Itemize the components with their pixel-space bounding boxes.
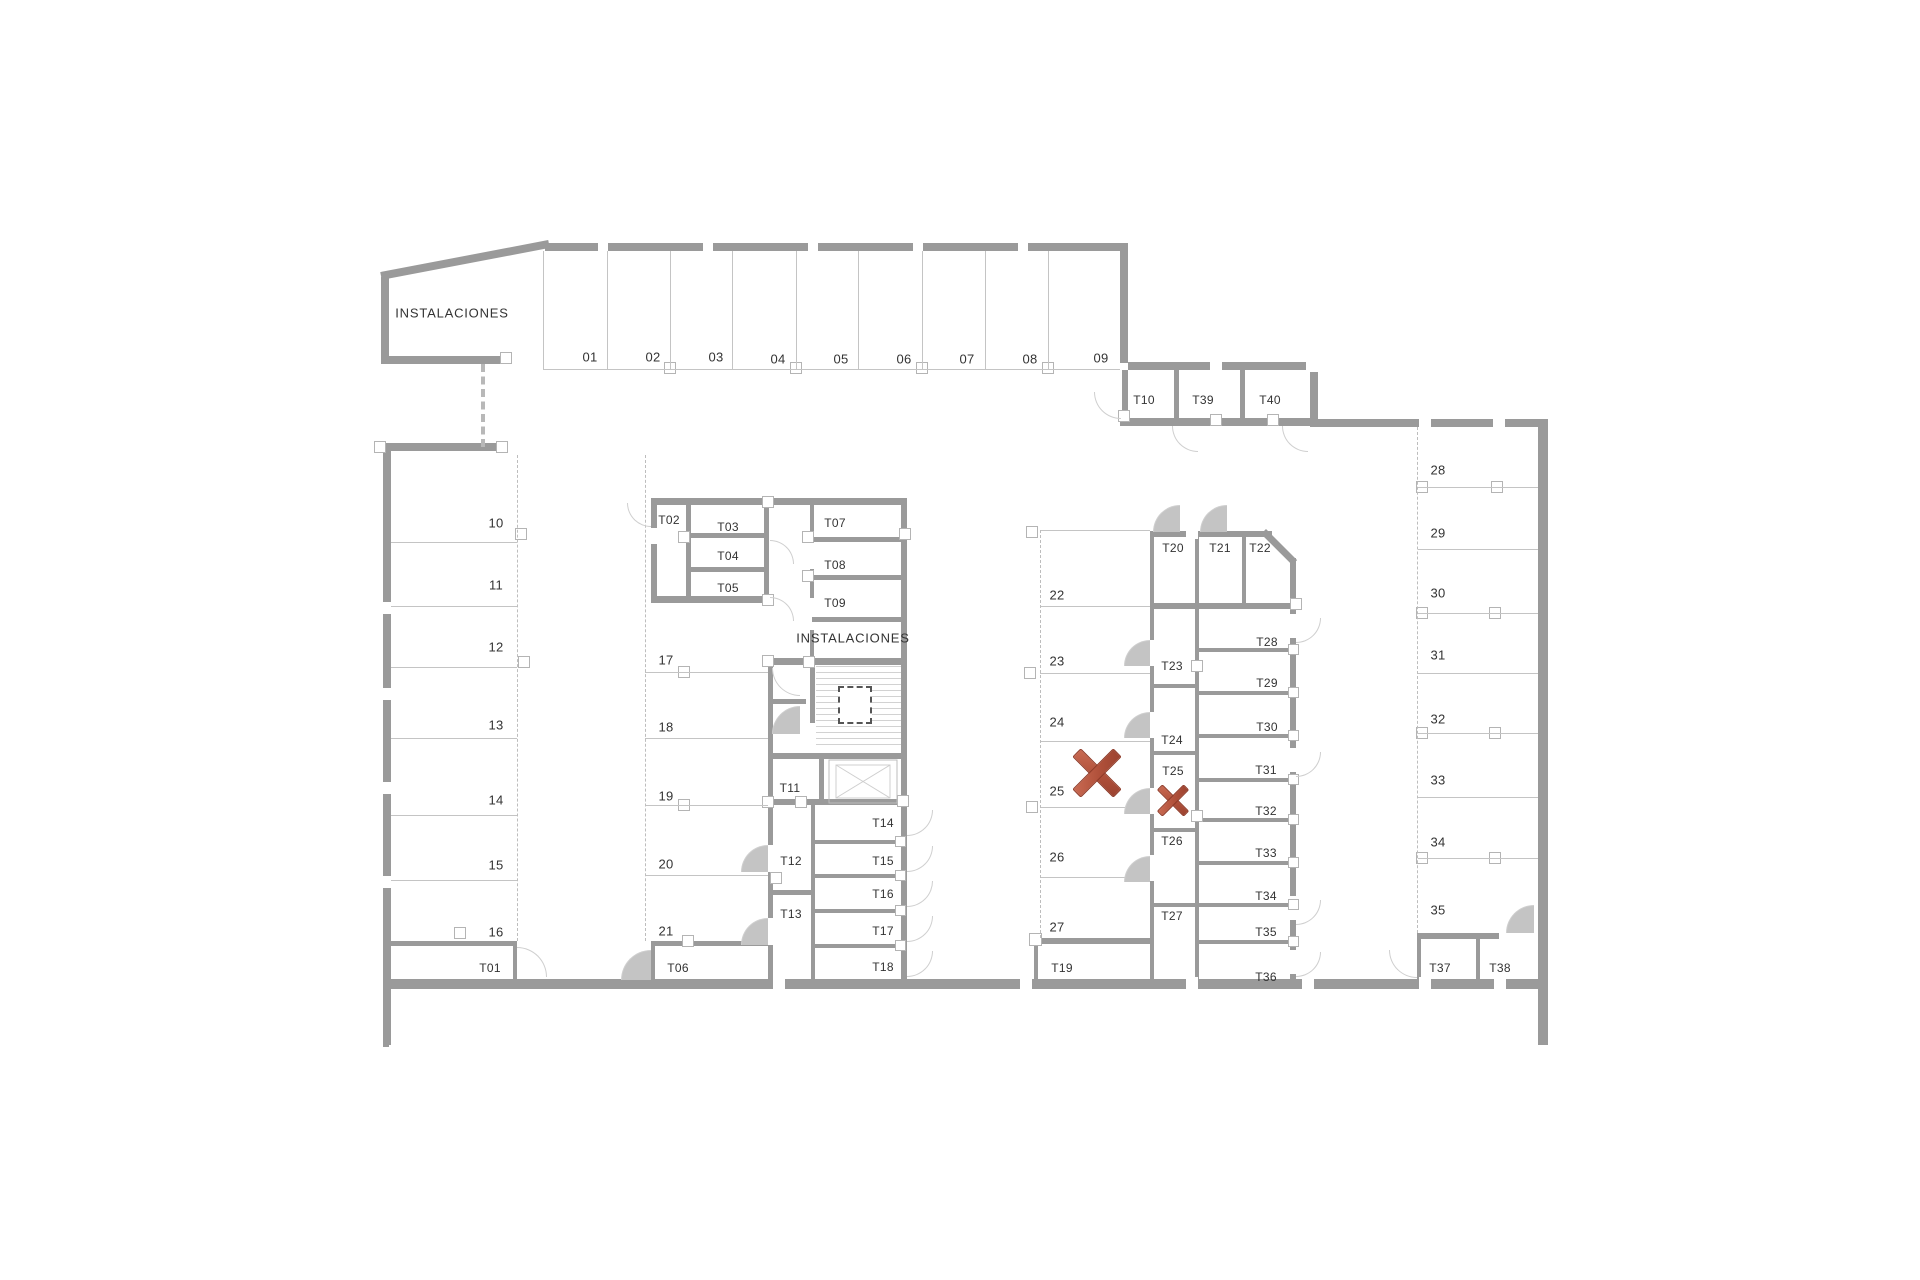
storage-unit-T16: T16 [872,887,894,901]
cross-annotation-1 [1075,754,1119,792]
wall [1199,940,1290,944]
parking-divider [796,251,797,370]
wall [1154,751,1195,755]
door-marker [762,496,774,508]
parking-space-19: 19 [658,789,673,804]
door-marker [802,570,814,582]
door-marker [1267,414,1279,426]
parking-space-12: 12 [488,640,503,655]
wall-opening [381,688,393,700]
wall [768,665,773,755]
door-arc [1124,640,1150,666]
elevator-icon [828,759,898,804]
door-arc [772,706,800,734]
parking-space-16: 16 [488,925,503,940]
wall-opening [808,241,818,253]
door-marker [500,352,512,364]
door-marker [1288,687,1299,698]
door-marker [1288,814,1299,825]
storage-unit-T24: T24 [1161,733,1183,747]
parking-space-28: 28 [1430,463,1445,478]
storage-unit-T27: T27 [1161,909,1183,923]
door-arc [907,916,933,942]
parking-divider [1418,613,1538,614]
wall-opening [381,602,393,614]
wall [768,699,806,704]
door-marker [802,531,814,543]
parking-space-35: 35 [1430,903,1445,918]
door-arc [1282,426,1308,452]
parking-space-04: 04 [770,352,785,367]
storage-unit-T20: T20 [1162,541,1184,555]
door-arc [1124,712,1150,738]
parking-divider [607,251,608,370]
parking-space-27: 27 [1049,920,1064,935]
boundary-dashed [517,455,518,941]
parking-divider [1040,606,1150,607]
parking-divider [645,738,768,739]
parking-divider [1418,797,1538,798]
boundary-dashed [645,455,646,941]
wall [1154,828,1195,832]
storage-unit-T07: T07 [824,516,846,530]
storage-unit-T22: T22 [1249,541,1271,555]
storage-unit-T28: T28 [1256,635,1278,649]
parking-divider [543,369,1120,370]
door-marker [1288,857,1299,868]
wall [1174,370,1179,418]
parking-divider [1418,487,1538,488]
wall [1128,362,1318,370]
door-arc [1296,900,1321,925]
parking-space-21: 21 [658,924,673,939]
wall-opening [1493,417,1505,429]
room-label-label: INSTALACIONES [796,631,909,646]
wall [545,243,1128,251]
parking-space-15: 15 [488,858,503,873]
storage-unit-T12: T12 [780,854,802,868]
storage-unit-T18: T18 [872,960,894,974]
door-arc [1094,392,1121,419]
storage-unit-T01: T01 [479,961,501,975]
door-marker [496,441,508,453]
parking-space-14: 14 [488,793,503,808]
wall [1240,370,1245,418]
parking-divider [670,251,671,370]
storage-unit-T05: T05 [717,581,739,595]
parking-divider [732,251,733,370]
stair-void [838,686,872,724]
boundary-dashed [1040,530,1041,938]
storage-unit-T34: T34 [1255,889,1277,903]
door-arc [1296,618,1321,643]
wall [1538,419,1548,1045]
storage-unit-T30: T30 [1256,720,1278,734]
wall [768,759,773,801]
parking-space-09: 09 [1093,351,1108,366]
parking-divider [645,875,768,876]
wall [1199,903,1290,907]
wall-opening [1419,417,1431,429]
storage-unit-T09: T09 [824,596,846,610]
storage-unit-T29: T29 [1256,676,1278,690]
door-arc [621,950,651,980]
wall [651,505,657,601]
door-marker [899,528,911,540]
door-marker [1210,414,1222,426]
wall [383,979,1548,989]
parking-space-08: 08 [1022,352,1037,367]
door-arc [907,846,933,872]
storage-unit-T23: T23 [1161,659,1183,673]
wall [812,575,904,580]
storage-unit-T25: T25 [1162,764,1184,778]
wall [815,944,902,948]
wall [380,240,549,280]
wall [1034,938,1150,944]
wall [819,759,824,801]
wall [381,277,389,362]
storage-unit-T19: T19 [1051,961,1073,975]
parking-divider [1040,530,1150,531]
door-marker [374,441,386,453]
parking-divider [1040,673,1150,674]
parking-space-18: 18 [658,720,673,735]
door-arc [1506,905,1534,933]
parking-space-11: 11 [489,578,503,593]
wall [1199,778,1290,782]
door-marker [682,935,694,947]
parking-divider [645,672,768,673]
wall [1310,370,1318,419]
storage-unit-T13: T13 [780,907,802,921]
wall [810,668,815,723]
wall [1150,603,1296,609]
door-arc [1124,788,1150,814]
parking-divider [391,667,517,668]
door-arc [1389,950,1417,978]
wall-opening [1302,977,1314,991]
parking-space-17: 17 [658,653,673,668]
parking-space-30: 30 [1430,586,1445,601]
door-marker [1024,667,1036,679]
wall [812,617,904,622]
parking-space-06: 06 [896,352,911,367]
storage-unit-T10: T10 [1133,393,1155,407]
parking-space-32: 32 [1430,712,1445,727]
wall [1242,537,1246,609]
door-marker [518,656,530,668]
parking-divider [1048,251,1049,370]
door-marker [1191,660,1203,672]
door-marker [762,655,774,667]
door-marker [803,656,815,668]
storage-unit-T17: T17 [872,924,894,938]
wall-opening [1018,241,1028,253]
door-marker [895,870,906,881]
wall-opening [1186,977,1198,991]
parking-divider [1418,858,1538,859]
wall [1290,609,1296,983]
parking-divider [391,815,517,816]
wall [773,498,907,505]
door-arc [907,881,933,907]
parking-space-23: 23 [1049,654,1064,669]
door-marker [454,927,466,939]
parking-space-01: 01 [582,350,597,365]
door-marker [1288,936,1299,947]
door-marker [1288,644,1299,655]
door-marker [795,796,807,808]
wall [1476,939,1480,983]
door-marker [678,531,690,543]
wall [383,989,389,1047]
wall [651,498,769,505]
parking-divider [858,251,859,370]
wall [375,443,508,451]
door-arc [772,668,800,696]
wall-opening [703,241,713,253]
storage-unit-T36: T36 [1255,970,1277,984]
parking-divider [1418,673,1538,674]
wall-opening [1494,977,1506,991]
storage-unit-T26: T26 [1161,834,1183,848]
parking-divider [922,251,923,370]
storage-unit-T15: T15 [872,854,894,868]
storage-unit-T14: T14 [872,816,894,830]
door-marker [895,905,906,916]
parking-divider [1040,741,1150,742]
wall-opening [1020,977,1032,991]
wall [686,505,691,601]
wall [1120,251,1128,363]
boundary-dashed [1417,427,1418,933]
parking-space-24: 24 [1049,715,1064,730]
parking-divider [1418,733,1538,734]
parking-divider [391,542,517,543]
wall [383,451,391,1045]
door-arc [741,845,768,872]
door-marker [1026,526,1038,538]
door-marker [1026,801,1038,813]
parking-space-10: 10 [488,516,503,531]
storage-unit-T32: T32 [1255,804,1277,818]
storage-unit-T03: T03 [717,520,739,534]
wall-opening [649,528,659,544]
door-arc [517,947,547,977]
storage-unit-T39: T39 [1192,393,1214,407]
storage-unit-T11: T11 [780,781,801,795]
wall [770,890,813,895]
parking-space-25: 25 [1049,784,1064,799]
wall-opening [773,977,785,991]
wall [815,840,902,844]
door-marker [895,836,906,847]
wall [1199,734,1290,738]
wall [381,356,512,364]
storage-unit-T31: T31 [1255,763,1277,777]
parking-space-29: 29 [1430,526,1445,541]
parking-divider [645,805,768,806]
door-marker [895,940,906,951]
door-arc [770,540,794,564]
wall-opening [381,782,393,794]
wall [815,909,902,913]
wall [651,596,768,603]
boundary-dashed [481,364,485,447]
wall [768,658,907,665]
door-marker [1290,598,1302,610]
storage-unit-T33: T33 [1255,846,1277,860]
storage-unit-T38: T38 [1489,961,1511,975]
wall [691,567,768,572]
parking-space-13: 13 [488,718,503,733]
door-marker [897,795,909,807]
wall [1417,933,1499,939]
cross-annotation-2 [1159,788,1187,813]
parking-space-26: 26 [1049,850,1064,865]
wall [1199,861,1290,865]
wall [1150,537,1154,609]
storage-unit-T37: T37 [1429,961,1451,975]
parking-space-22: 22 [1049,588,1064,603]
wall [1195,537,1199,609]
door-arc [1172,426,1198,452]
door-arc [1296,752,1321,777]
storage-unit-T02: T02 [658,513,680,527]
parking-divider [391,738,517,739]
room-label-label: INSTALACIONES [395,306,508,321]
wall [383,941,517,946]
storage-unit-T40: T40 [1259,393,1281,407]
parking-space-02: 02 [645,350,660,365]
wall [812,537,904,542]
door-arc [1296,952,1321,977]
door-arc [627,503,651,527]
storage-unit-T35: T35 [1255,925,1277,939]
parking-space-34: 34 [1430,835,1445,850]
wall [651,946,655,983]
door-marker [770,872,782,884]
parking-divider [391,606,517,607]
door-arc [907,810,933,836]
door-arc [741,918,768,945]
parking-divider [543,251,544,370]
storage-unit-T04: T04 [717,549,739,563]
door-marker [1191,810,1203,822]
storage-unit-T08: T08 [824,558,846,572]
door-marker [762,796,774,808]
door-arc [1200,505,1227,532]
parking-space-31: 31 [1430,648,1445,663]
parking-divider [1418,549,1538,550]
wall [1034,944,1038,983]
storage-unit-T21: T21 [1209,541,1231,555]
parking-divider [985,251,986,370]
wall [1154,684,1195,688]
wall-opening [1210,360,1222,372]
door-arc [907,951,933,977]
wall [764,505,769,600]
wall-opening [1306,360,1318,372]
door-arc [1124,856,1150,882]
wall-opening [1186,529,1198,539]
wall-opening [381,876,393,888]
wall [1199,691,1290,695]
wall [1154,903,1195,907]
parking-space-07: 07 [959,352,974,367]
wall [1199,818,1290,822]
door-arc [770,597,794,621]
parking-divider [391,880,517,881]
parking-space-03: 03 [708,350,723,365]
wall-opening [1419,977,1431,991]
parking-space-33: 33 [1430,773,1445,788]
parking-space-20: 20 [658,857,673,872]
wall [815,874,902,878]
parking-space-05: 05 [833,352,848,367]
floor-plan: 0102030405060708091011121314151617181920… [0,0,1920,1280]
door-arc [1153,505,1180,532]
storage-unit-T06: T06 [667,961,689,975]
door-marker [1288,730,1299,741]
